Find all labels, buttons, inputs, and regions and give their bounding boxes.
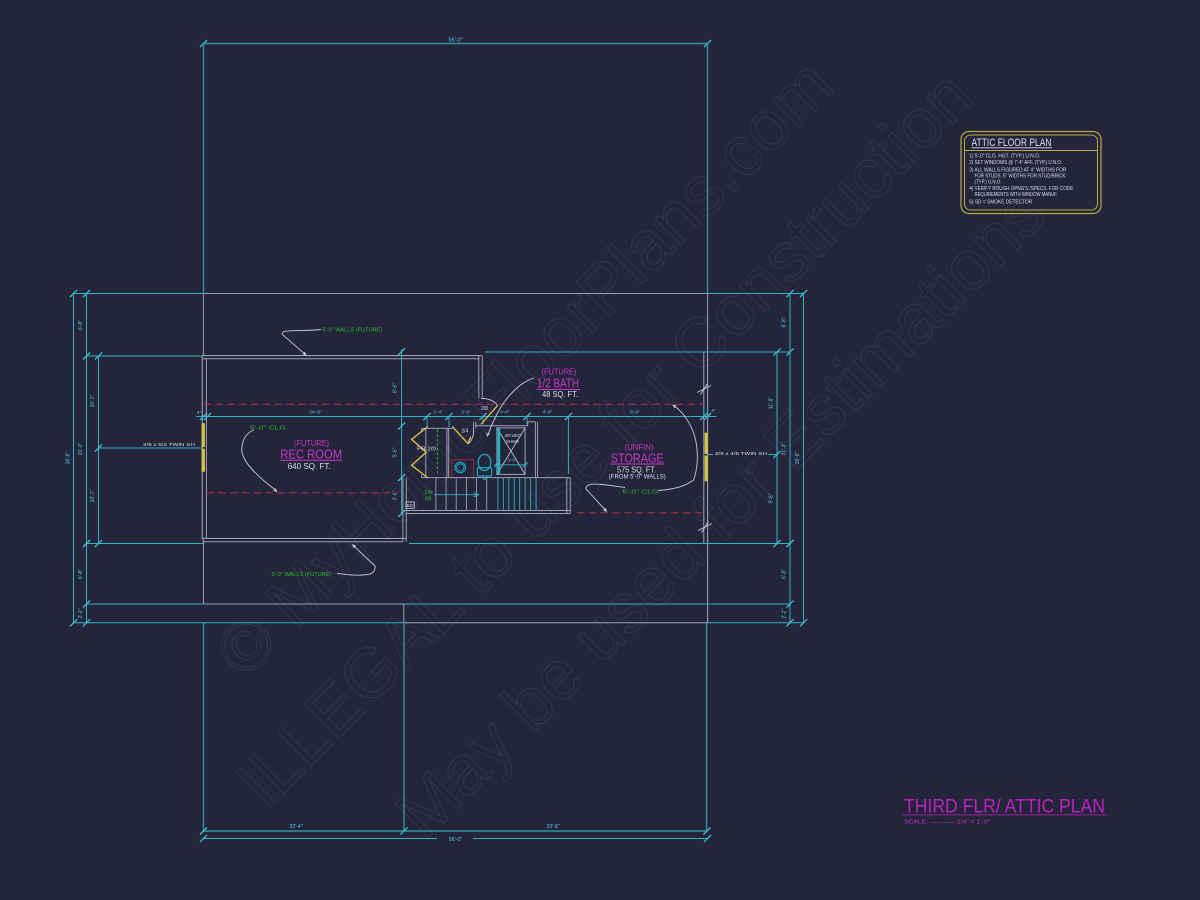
svg-text:4": 4" [711,408,716,414]
svg-text:36"x60": 36"x60" [505,433,521,439]
svg-text:SHWR: SHWR [506,439,519,445]
svg-text:5'-0" CLG.: 5'-0" CLG. [250,426,288,432]
svg-text:1/2 BATH: 1/2 BATH [537,376,579,391]
svg-text:48 SQ. FT.: 48 SQ. FT. [542,390,578,399]
svg-text:2) SET WINDOWS @ 7'-4" AFF. (T: 2) SET WINDOWS @ 7'-4" AFF. (TYP.) U.N.O… [969,160,1062,166]
svg-text:10'-7": 10'-7" [90,394,96,407]
svg-text:5'-0" WALLS (FUTURE): 5'-0" WALLS (FUTURE) [272,572,332,578]
svg-text:6'-8": 6'-8" [78,569,84,579]
svg-text:4'-8": 4'-8" [543,410,553,416]
svg-text:22'-4": 22'-4" [289,824,302,830]
svg-text:3'-9": 3'-9" [461,410,471,416]
svg-text:DN: DN [425,490,433,496]
svg-text:REC ROOM: REC ROOM [280,447,342,462]
svg-text:SCALE: ------------1/4" = 1'-0: SCALE: ------------1/4" = 1'-0" [904,820,990,826]
svg-text:(TYP.) U.N.O.: (TYP.) U.N.O. [975,180,1002,186]
svg-text:6'-8": 6'-8" [782,317,788,327]
svg-text:56'-0": 56'-0" [448,38,462,44]
svg-text:36'-8": 36'-8" [66,451,72,464]
svg-text:STORAGE: STORAGE [611,451,664,466]
svg-text:33'-8": 33'-8" [546,824,559,830]
svg-text:24'-8": 24'-8" [309,410,322,416]
svg-text:36'-8": 36'-8" [795,451,801,464]
svg-text:8'-0": 8'-0" [630,410,640,416]
svg-text:5'-0" CLG.: 5'-0" CLG. [623,489,661,495]
svg-text:640 SQ. FT.: 640 SQ. FT. [288,461,331,471]
svg-text:5'-0" WALLS (FUTURE): 5'-0" WALLS (FUTURE) [322,328,382,334]
svg-text:2/4: 2/4 [461,429,468,435]
svg-text:REQUIREMENTS WITH WINDOW MANUF: REQUIREMENTS WITH WINDOW MANUF. [975,192,1058,198]
svg-text:6'-8": 6'-8" [78,320,84,330]
svg-text:8'-6": 8'-6" [393,383,399,393]
svg-text:2/8 x 4/6 TWIN SH: 2/8 x 4/6 TWIN SH [715,451,768,457]
svg-text:1) 5'-0" CLG. HGT. (TYP.) U.N: 1) 5'-0" CLG. HGT. (TYP.) U.N.O. [969,154,1040,160]
svg-text:ATTIC FLOOR PLAN: ATTIC FLOOR PLAN [972,137,1052,149]
svg-text:11'-8": 11'-8" [769,397,775,410]
svg-text:5) SD = SMOKE DETECTOR: 5) SD = SMOKE DETECTOR [969,200,1032,206]
svg-text:6'-8": 6'-8" [782,569,788,579]
svg-text:2'-2": 2'-2" [782,608,788,618]
svg-text:56'-0": 56'-0" [449,837,462,843]
svg-text:2/8 x 5/2 TWIN SH: 2/8 x 5/2 TWIN SH [143,442,196,448]
svg-text:(FROM 5'-0" WALLS): (FROM 5'-0" WALLS) [609,473,666,480]
svg-text:2'-2": 2'-2" [78,608,84,618]
svg-text:2'-4": 2'-4" [433,410,443,416]
svg-text:31'-2": 31'-2" [782,442,788,455]
svg-text:PR 2/0: PR 2/0 [417,447,436,453]
svg-text:4": 4" [197,410,202,416]
svg-text:5R: 5R [425,497,432,503]
svg-text:3'-6": 3'-6" [393,490,399,500]
svg-text:10'-7": 10'-7" [90,489,96,502]
svg-text:2/8: 2/8 [481,406,488,412]
svg-text:3'-0": 3'-0" [507,457,517,462]
svg-text:5'-6": 5'-6" [393,447,399,457]
svg-text:21'-2": 21'-2" [78,442,84,455]
svg-text:9'-6": 9'-6" [769,493,775,503]
svg-text:BO: BO [407,503,414,508]
svg-text:4'-0": 4'-0" [500,410,510,416]
